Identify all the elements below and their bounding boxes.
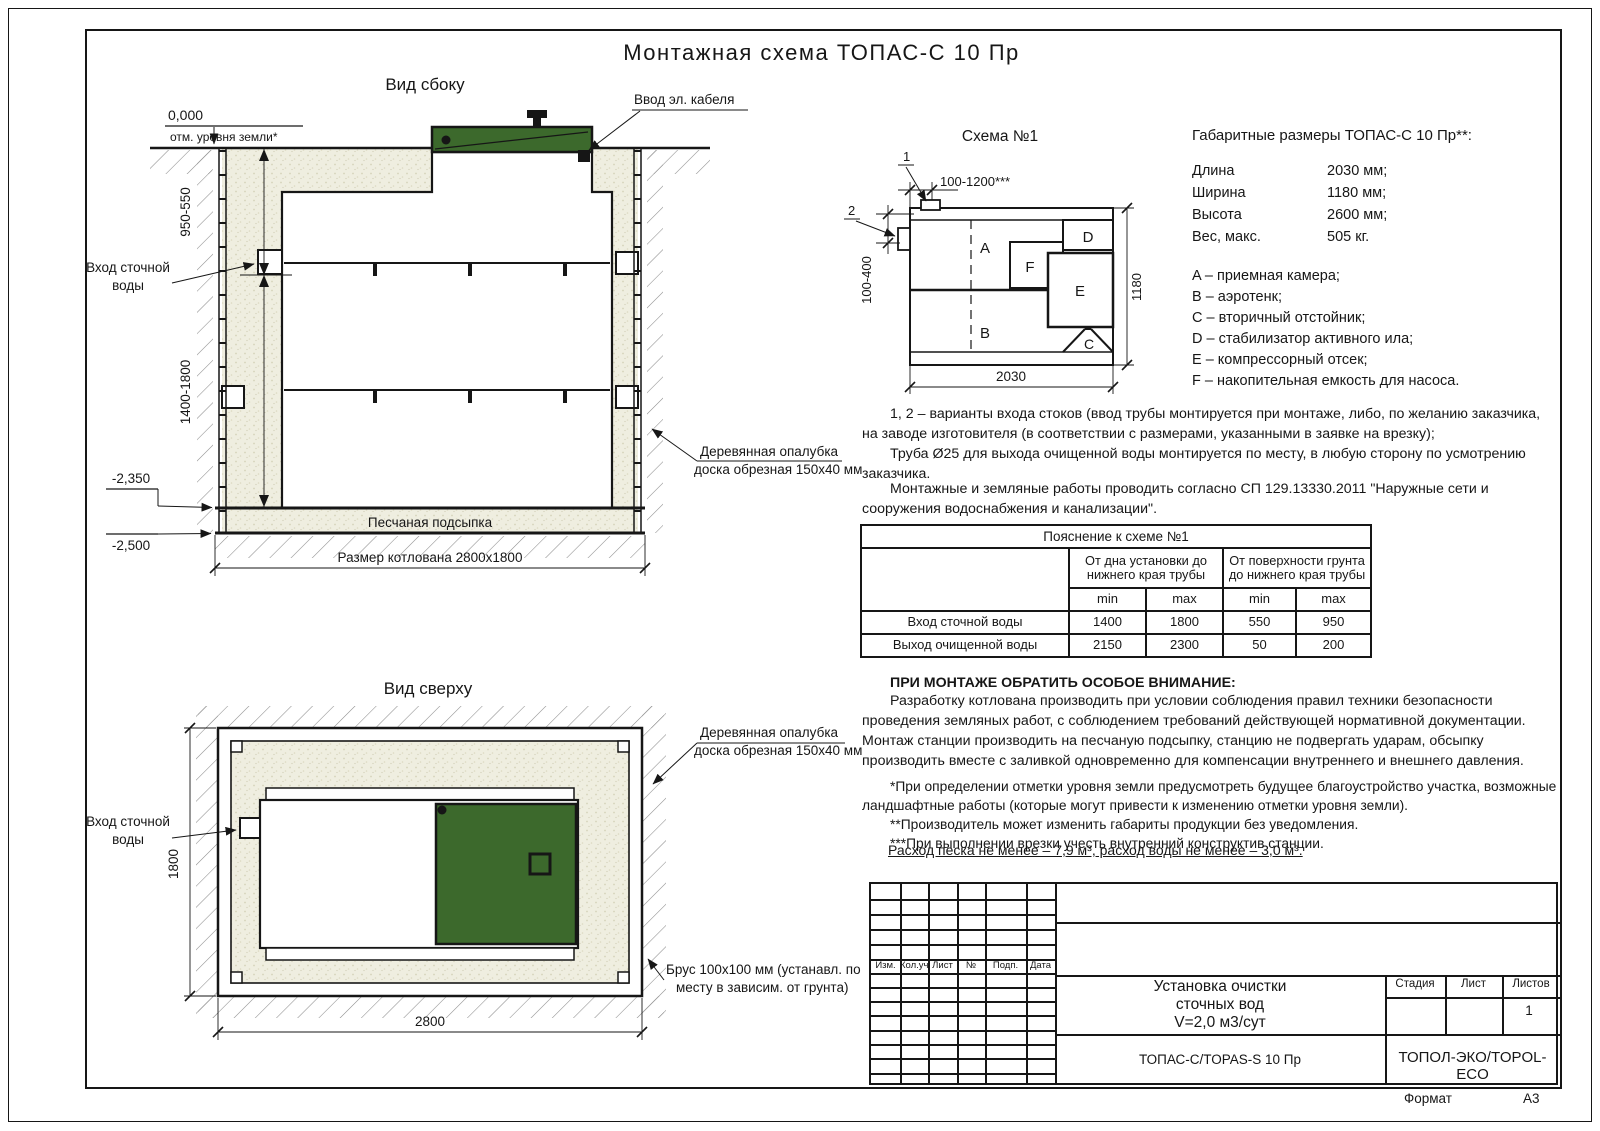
top-view: Вид сверху Вход сточной воды [86,679,862,1040]
stamp-sheets-value: 1 [1500,1003,1558,1018]
spec-row: Высота2600 мм; [1192,204,1562,226]
cable-label: Ввод эл. кабеля [589,92,748,150]
compartment-b: B [980,325,990,342]
specs-block: Габаритные размеры ТОПАС-С 10 Пр**: Длин… [1192,127,1562,392]
explanation-table: Пояснение к схеме №1 От дна установки до… [860,524,1372,658]
compartment-e: E [1075,283,1085,300]
svg-text:Деревянная опалубка: Деревянная опалубка [700,725,839,740]
callout-1: 1 [898,149,926,201]
stamp-col-list: Лист [928,959,957,973]
specs-title: Габаритные размеры ТОПАС-С 10 Пр**: [1192,127,1562,144]
col-header: От дна установки до нижнего края трубы [1069,548,1223,588]
specs-rows: Длина2030 мм; Ширина1180 мм; Высота2600 … [1192,160,1562,248]
legend-item: B – аэротенк; [1192,287,1562,308]
stamp-sheets: Листов [1502,978,1560,990]
tank-body [282,152,612,508]
stamp-col-izm: Изм. [871,959,900,973]
svg-text:месту в зависим. от грунта): месту в зависим. от грунта) [676,980,848,995]
schema-dim-top: 100-1200*** [898,174,1010,208]
compartment-c: C [1084,336,1094,352]
schema-1: Схема №1 A B C D E F 1 [844,128,1144,394]
stamp-col-data: Дата [1026,959,1055,973]
col-header: От поверхности грунта до нижнего края тр… [1223,548,1371,588]
schema-title: Схема №1 [962,128,1038,145]
format-label: Формат [1404,1091,1452,1106]
svg-text:0,000: 0,000 [168,107,203,123]
drawing-sheet: Монтажная схема ТОПАС-С 10 Пр Вид сбоку [0,0,1600,1131]
svg-text:1180: 1180 [1129,273,1144,301]
attention-title: ПРИ МОНТАЖЕ ОБРАТИТЬ ОСОБОЕ ВНИМАНИЕ: [862,675,1558,691]
legend-item: C – вторичный отстойник; [1192,308,1562,329]
svg-text:доска обрезная 150х40 мм: доска обрезная 150х40 мм [694,743,862,758]
svg-text:воды: воды [112,278,144,293]
stamp-company: ТОПОЛ-ЭКО/TOPOL-ECO [1385,1049,1560,1083]
svg-text:2: 2 [848,203,855,218]
svg-text:1800: 1800 [166,849,181,879]
compartment-legend: A – приемная камера; B – аэротенк; C – в… [1192,266,1562,392]
table-corner-cell [861,548,1069,611]
title-block: Изм. Кол.уч. Лист № док. Подп. Дата Уста… [869,882,1558,1085]
callout-2: 2 [844,203,895,236]
vent-cap [527,110,547,118]
ground-note: отм. уровня земли* [170,130,278,144]
compartment-a: A [980,240,990,257]
beam-label: Брус 100х100 мм (устанавл. по месту в за… [648,959,861,995]
corner-beam [231,741,242,752]
svg-text:100-1200***: 100-1200*** [940,174,1010,189]
dim-1400-1800: 1400-1800 [178,360,193,425]
legend-item: A – приемная камера; [1192,266,1562,287]
legend-item: F – накопительная емкость для насоса. [1192,371,1562,392]
table-row: Вход сточной воды 1400 1800 550 950 [861,611,1371,634]
table-row: Выход очищенной воды 2150 2300 50 200 [861,634,1371,657]
schema-dim-right: 1180 [1113,203,1144,370]
inlet-stub-1 [921,200,940,210]
cable-entry-point [578,150,590,162]
compartment-f: F [1025,259,1034,276]
stamp-doc-title: Установка очистки сточных вод V=2,0 м3/с… [1055,978,1385,1032]
sand-base-label: Песчаная подсыпка [368,515,493,530]
schema-dim-left: 100-400 [859,205,914,304]
stamp-col-podp: Подп. [985,959,1026,973]
svg-text:Деревянная опалубка: Деревянная опалубка [700,444,839,459]
inlet-nozzle-top [240,818,260,838]
format-value: А3 [1523,1091,1540,1106]
svg-text:2030: 2030 [996,369,1026,384]
svg-text:Брус 100х100 мм (устанавл. по: Брус 100х100 мм (устанавл. по [666,962,861,977]
spec-row: Ширина1180 мм; [1192,182,1562,204]
dim-950-550: 950-550 [178,187,193,237]
compartment-d: D [1083,229,1094,246]
stamp-model: ТОПАС-С/TOPAS-S 10 Пр [1055,1052,1385,1067]
spec-row: Длина2030 мм; [1192,160,1562,182]
legend-item: E – компрессорный отсек; [1192,350,1562,371]
notes-works: Монтажные и земляные работы проводить со… [862,479,1542,519]
table-title: Пояснение к схеме №1 [861,525,1371,548]
attention-block: ПРИ МОНТАЖЕ ОБРАТИТЬ ОСОБОЕ ВНИМАНИЕ: Ра… [862,675,1558,771]
spec-row: Вес, макс.505 кг. [1192,226,1562,248]
consumption-note: Расход песка не менее – 7,9 м³, расход в… [888,842,1303,858]
pit-size-label: Размер котлована 2800х1800 [338,550,523,565]
top-view-title: Вид сверху [384,679,473,698]
stamp-sheet: Лист [1445,978,1502,990]
elevation-marks: -2,350 -2,500 [106,471,212,553]
svg-text:Вход сточной: Вход сточной [86,814,170,829]
stamp-col-doc: № док. [957,959,985,973]
formwork-label-top: Деревянная опалубка доска обрезная 150х4… [653,725,862,784]
formwork-label-side: Деревянная опалубка доска обрезная 150х4… [652,429,862,477]
notes-variants: 1, 2 – варианты входа стоков (ввод трубы… [862,404,1558,484]
zero-level-mark: 0,000 отм. уровня земли* [165,107,303,144]
tank-lid-top [436,804,576,944]
schema-dim-bottom: 2030 [905,365,1118,394]
tank-rim-top [266,788,574,800]
svg-text:100-400: 100-400 [859,256,874,304]
svg-text:Вход сточной: Вход сточной [86,260,170,275]
side-view: Вид сбоку [86,75,862,576]
side-view-title: Вид сбоку [385,75,465,94]
stamp-col-kol: Кол.уч. [900,959,928,973]
inlet-stub-2 [898,228,910,250]
inlet-nozzle [258,250,282,274]
svg-text:-2,350: -2,350 [112,471,150,486]
svg-text:1: 1 [903,149,910,164]
legend-item: D – стабилизатор активного ила; [1192,329,1562,350]
svg-text:доска обрезная 150х40 мм: доска обрезная 150х40 мм [694,462,862,477]
svg-text:воды: воды [112,832,144,847]
svg-text:-2,500: -2,500 [112,538,150,553]
stamp-stage: Стадия [1385,978,1445,990]
svg-text:2800: 2800 [415,1014,445,1029]
svg-text:Ввод эл. кабеля: Ввод эл. кабеля [634,92,734,107]
